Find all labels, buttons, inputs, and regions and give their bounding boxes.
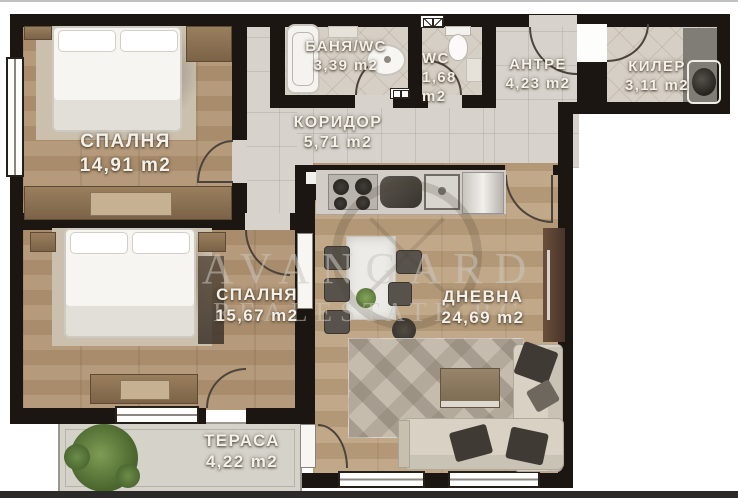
- bedroom1-window: [6, 57, 24, 177]
- bedroom1-label: СПАЛНЯ 14,91 m2: [58, 130, 193, 178]
- vent-cell-icon: [433, 18, 443, 27]
- bedroom1-door-opening: [232, 140, 247, 183]
- plant-icon: [70, 424, 138, 492]
- bath-label: БАНЯ/WC 3,39 m2: [292, 38, 400, 76]
- wall-wc-right: [482, 14, 496, 108]
- room-name: КОРИДОР: [282, 113, 394, 133]
- plant-leaves: [116, 464, 140, 488]
- room-name: БАНЯ/WC: [292, 38, 400, 57]
- pillow-icon: [120, 30, 178, 52]
- nightstand-icon: [30, 232, 56, 252]
- vent-cell-icon: [393, 90, 401, 98]
- room-area: 4,23 m2: [498, 75, 578, 94]
- living-window-2: [448, 471, 540, 488]
- room-area: 15,67 m2: [206, 305, 308, 326]
- closet-label: КИЛЕР 3,11 m2: [610, 58, 704, 96]
- pillow-icon: [58, 30, 116, 52]
- room-name: АНТРЕ: [498, 56, 578, 75]
- room-area: 24,69 m2: [428, 307, 538, 328]
- vent-shaft-icon-2: [390, 88, 410, 99]
- room-name: WC: [422, 50, 478, 69]
- coffee-table-icon: [440, 368, 500, 408]
- room-name: ТЕРАСА: [186, 430, 298, 451]
- wall-bedroom2-bottom-c: [246, 408, 302, 424]
- room-name: ДНЕВНА: [428, 286, 538, 307]
- bath-shelf: [328, 26, 358, 38]
- dresser-panel: [120, 380, 170, 400]
- terrace-living-door-leaf: [300, 424, 316, 468]
- burner: [334, 197, 347, 210]
- wall-living-bottom-a: [302, 473, 340, 488]
- room-area: 3,39 m2: [292, 57, 400, 76]
- vent-cell-icon: [401, 90, 409, 98]
- nightstand-icon: [24, 26, 52, 40]
- vent-cell-icon: [423, 18, 433, 27]
- wall-bedroom2-bottom-a: [10, 408, 117, 424]
- bedroom2-window: [115, 406, 199, 424]
- entry-door-opening: [529, 15, 577, 27]
- entry-label: АНТРЕ 4,23 m2: [498, 56, 578, 94]
- wc-label: WC 1,68 m2: [422, 50, 478, 106]
- dresser-panel: [90, 192, 172, 216]
- corridor-label: КОРИДОР 5,71 m2: [282, 113, 394, 153]
- living-window-1: [338, 471, 425, 488]
- bedroom2-label: СПАЛНЯ 15,67 m2: [206, 284, 308, 327]
- floor-plan: AVANGARD REALESTATE.BG СПАЛНЯ 14,91 m2 Б…: [0, 0, 738, 498]
- living-door-leaf: [551, 175, 553, 223]
- room-name: СПАЛНЯ: [58, 130, 193, 154]
- bedroom1-door-leaf: [197, 181, 233, 183]
- dishwasher-icon: [462, 172, 504, 214]
- bath-door-opening: [355, 95, 393, 108]
- room-name: СПАЛНЯ: [206, 284, 308, 305]
- corridor-floor-niche: [245, 26, 272, 106]
- wall-living-bottom-b: [423, 473, 450, 488]
- wall-corridor-living-east: [553, 165, 568, 175]
- wall-bath-left: [270, 14, 285, 108]
- room-area: 3,11 m2: [610, 77, 704, 96]
- room-area: 14,91 m2: [58, 154, 193, 178]
- room-area: 5,71 m2: [282, 133, 394, 153]
- plant-leaves: [64, 444, 90, 470]
- wall-living-bottom-c: [538, 473, 573, 488]
- photo-top-edge: [0, 0, 738, 2]
- sofa-armrest: [398, 420, 410, 468]
- wardrobe-icon: [186, 26, 232, 62]
- coffee-table-shelf: [441, 401, 499, 407]
- photo-bottom-edge: [0, 491, 738, 498]
- terrace-label: ТЕРАСА 4,22 m2: [186, 430, 298, 473]
- room-area: 1,68 m2: [422, 69, 478, 107]
- burner: [333, 179, 349, 195]
- wall-bedroom1-right: [232, 14, 247, 225]
- pillow-icon: [70, 232, 128, 254]
- closet-door-opening: [577, 24, 607, 62]
- vent-shaft-icon: [420, 15, 444, 28]
- bedroom2-door-opening: [245, 213, 290, 230]
- room-name: КИЛЕР: [610, 58, 704, 77]
- room-area: 4,22 m2: [186, 451, 298, 472]
- living-label: ДНЕВНА 24,69 m2: [428, 286, 538, 329]
